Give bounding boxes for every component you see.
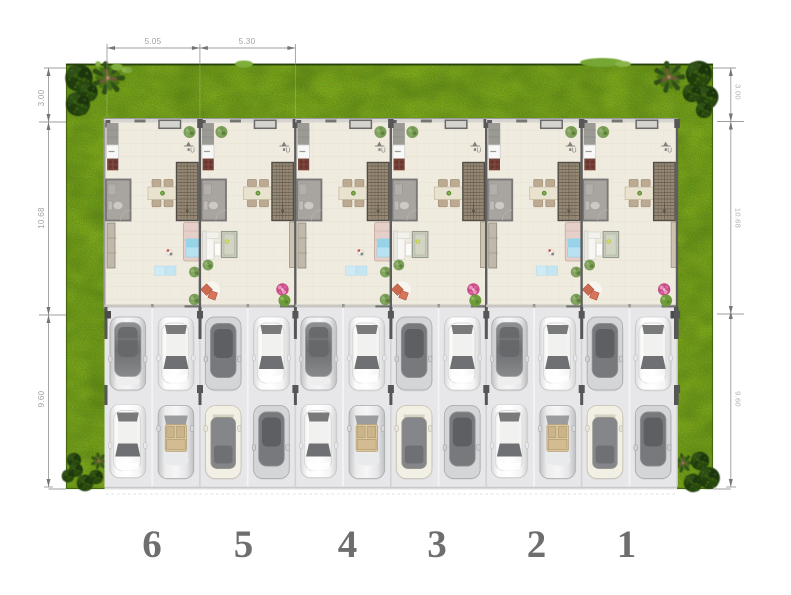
svg-text:6: 6 bbox=[142, 523, 162, 566]
svg-text:10.68: 10.68 bbox=[37, 207, 46, 229]
svg-text:5.05: 5.05 bbox=[145, 37, 162, 46]
svg-text:3.00: 3.00 bbox=[37, 89, 46, 106]
svg-text:3.00: 3.00 bbox=[734, 84, 743, 100]
svg-text:5: 5 bbox=[234, 523, 254, 566]
svg-text:4: 4 bbox=[338, 523, 358, 566]
svg-text:5.30: 5.30 bbox=[239, 37, 256, 46]
svg-text:9.60: 9.60 bbox=[734, 391, 743, 407]
svg-text:1: 1 bbox=[617, 523, 637, 566]
svg-text:3: 3 bbox=[427, 523, 447, 566]
svg-text:10.68: 10.68 bbox=[734, 208, 743, 228]
svg-text:9.60: 9.60 bbox=[37, 390, 46, 407]
svg-text:2: 2 bbox=[527, 523, 547, 566]
